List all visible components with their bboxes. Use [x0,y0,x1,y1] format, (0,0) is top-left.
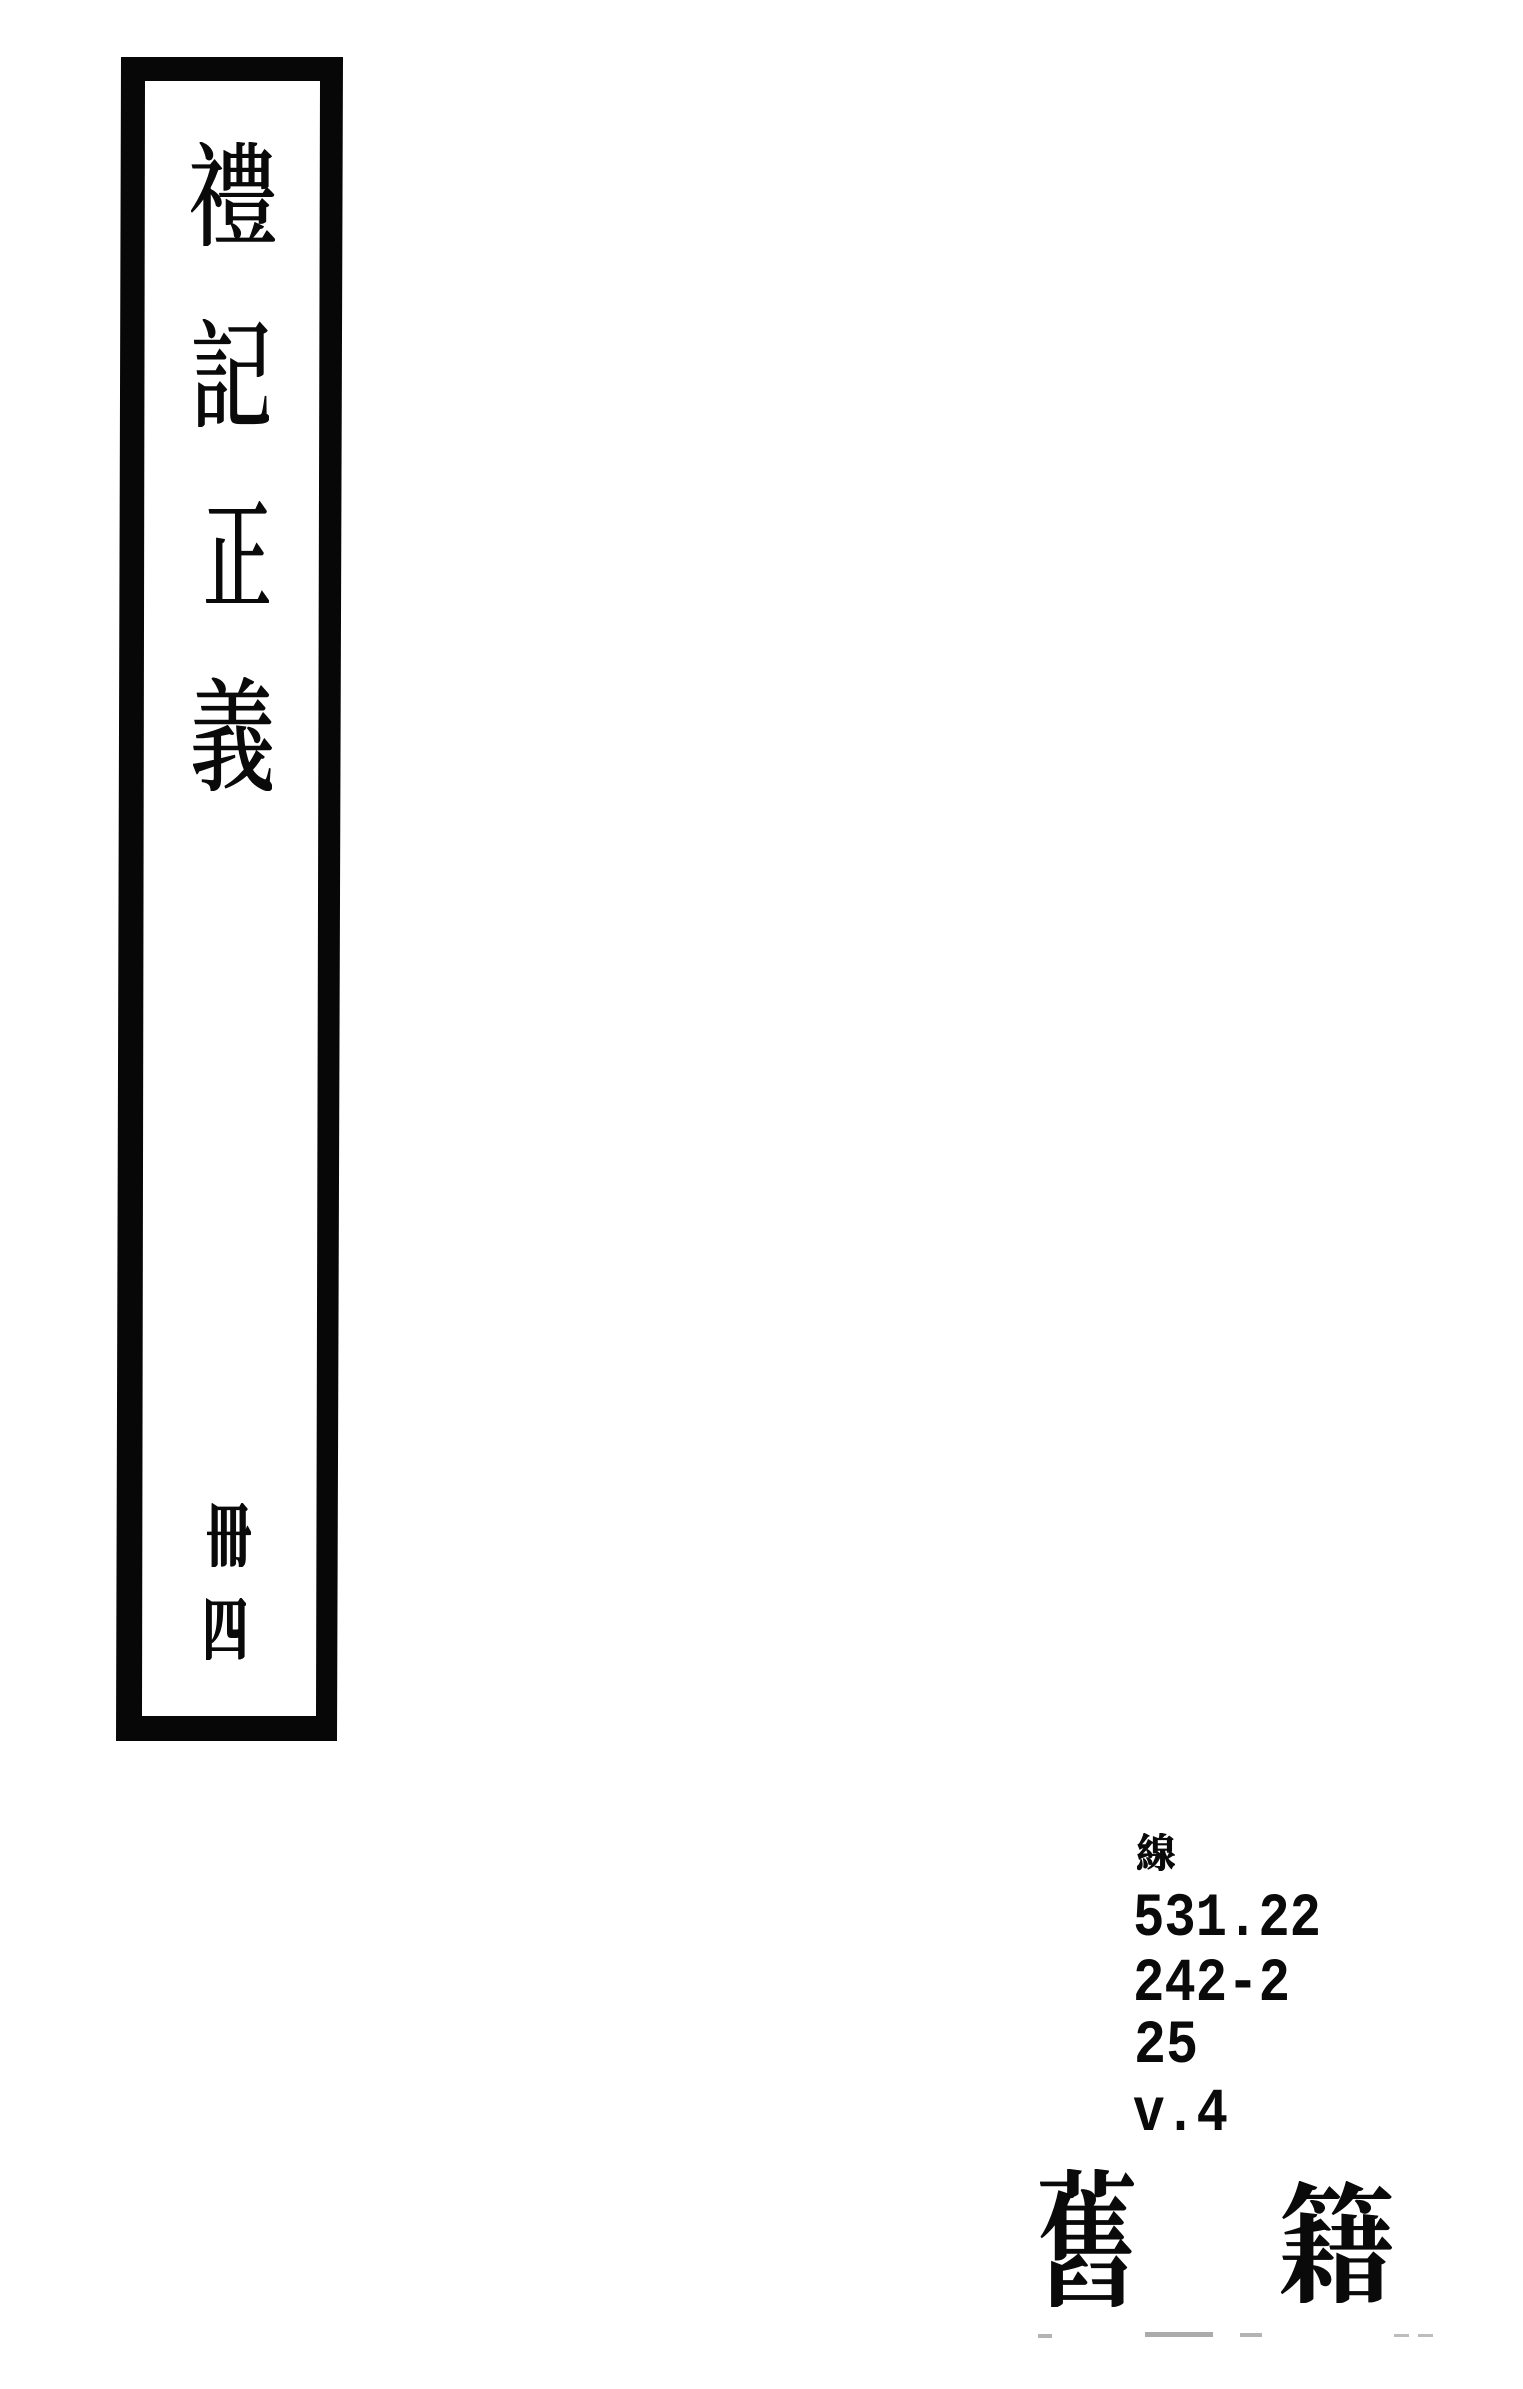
svg-text:v.4: v.4 [1133,2080,1228,2149]
svg-text:25: 25 [1134,2012,1198,2081]
svg-text:531.22: 531.22 [1133,1885,1321,1954]
svg-text:242-2: 242-2 [1133,1950,1290,2019]
